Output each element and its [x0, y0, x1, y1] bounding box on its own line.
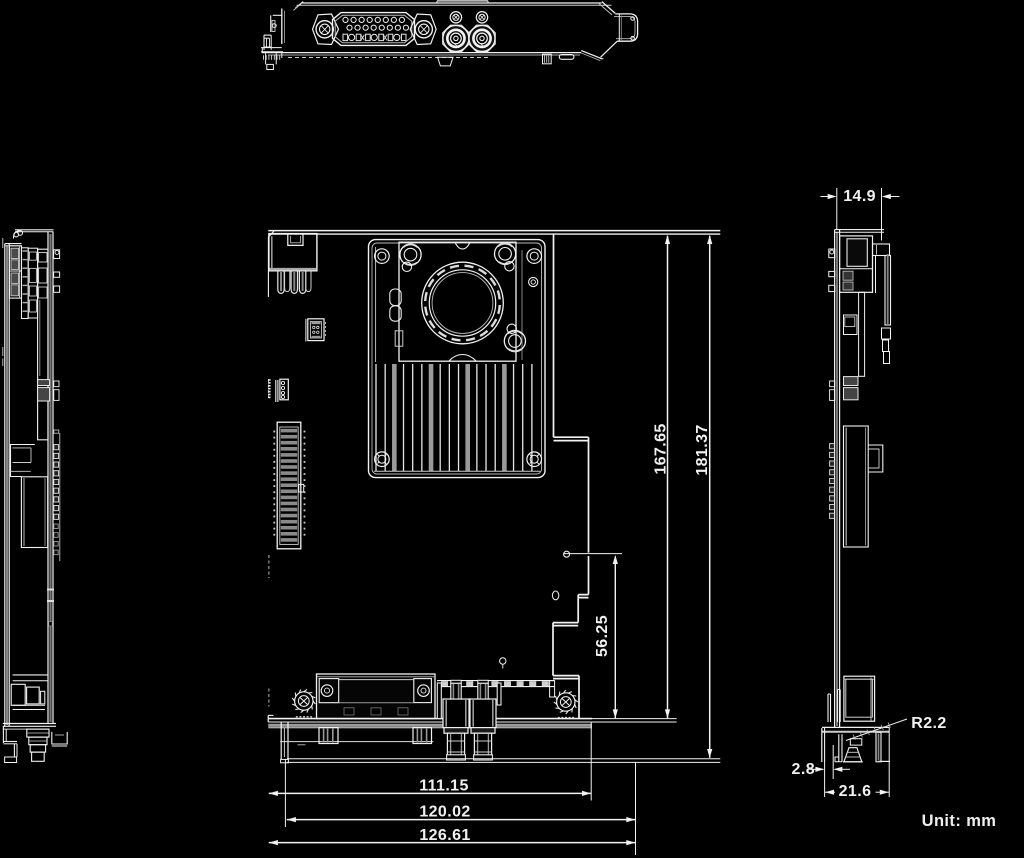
svg-text:120.02: 120.02 — [419, 804, 470, 821]
svg-text:111.15: 111.15 — [419, 778, 469, 795]
svg-text:56.25: 56.25 — [594, 615, 611, 657]
svg-text:Unit: mm: Unit: mm — [922, 812, 997, 830]
svg-text:2.8: 2.8 — [792, 761, 815, 778]
svg-text:181.37: 181.37 — [694, 424, 711, 475]
svg-text:R2.2: R2.2 — [911, 715, 946, 732]
svg-text:21.6: 21.6 — [839, 783, 872, 800]
svg-text:126.61: 126.61 — [419, 827, 470, 844]
svg-text:14.9: 14.9 — [843, 188, 876, 205]
svg-text:167.65: 167.65 — [653, 423, 670, 474]
